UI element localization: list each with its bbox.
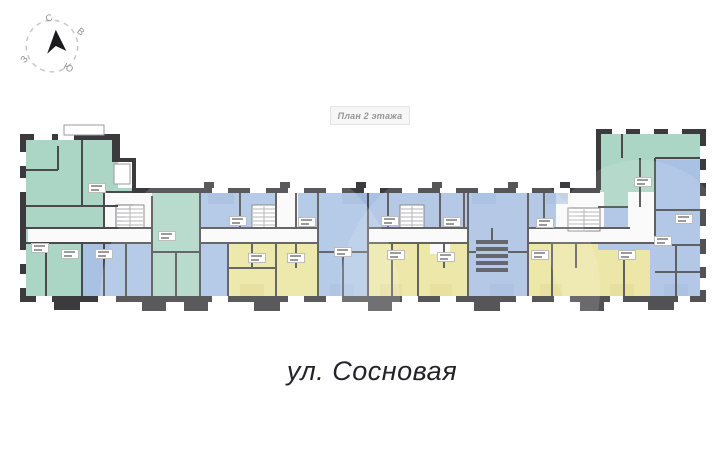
compass-west: З bbox=[18, 54, 30, 66]
floor-plan-page: С В З Ю План 2 этажа ул. Сосновая bbox=[0, 0, 720, 465]
compass-south: Ю bbox=[61, 61, 75, 75]
compass-icon: С В З Ю bbox=[8, 4, 94, 90]
floor-plan bbox=[0, 0, 720, 465]
watermark bbox=[100, 150, 720, 450]
compass-east: В bbox=[74, 26, 86, 39]
compass-north: С bbox=[44, 12, 55, 25]
street-name: ул. Сосновая bbox=[0, 356, 720, 387]
plan-title: План 2 этажа bbox=[330, 106, 410, 125]
north-arrow-icon bbox=[47, 30, 66, 54]
